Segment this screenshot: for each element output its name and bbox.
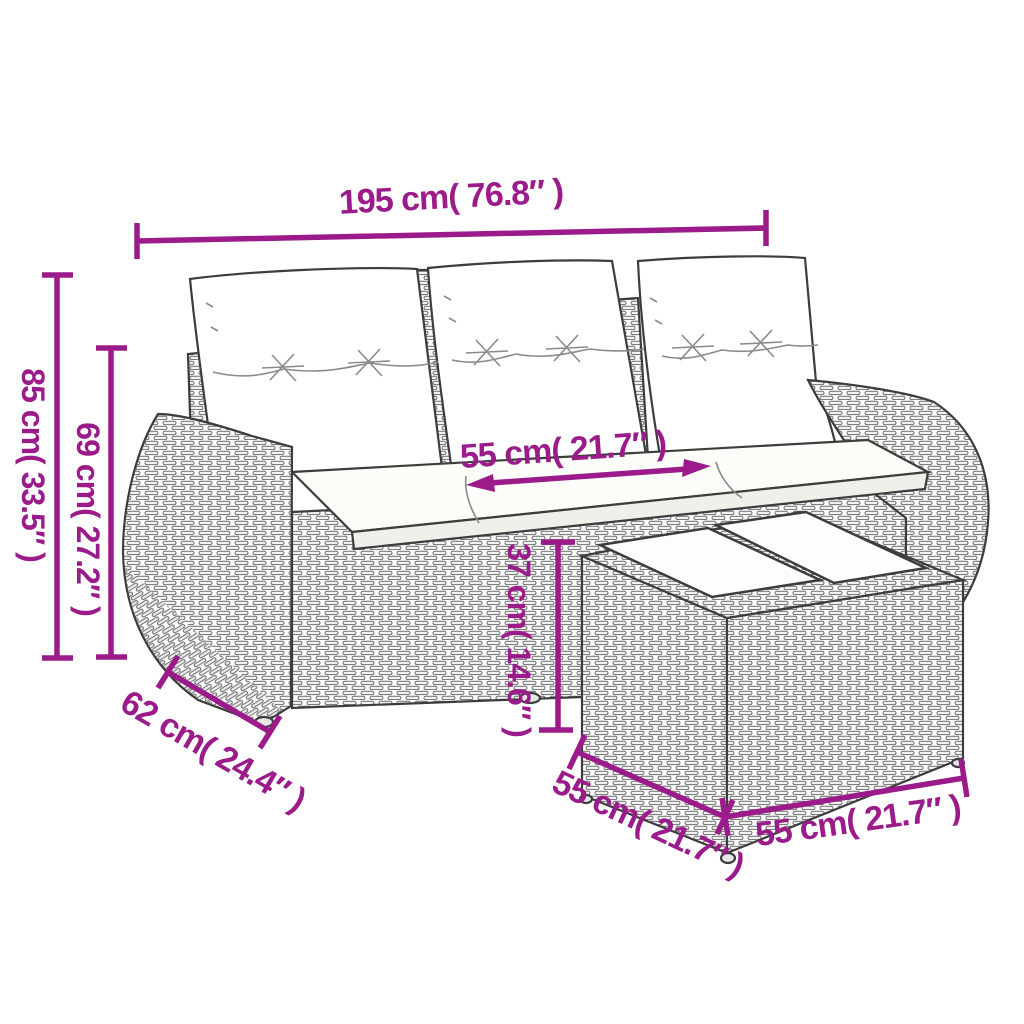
product-dimension-diagram: 195 cm( 76.8″ ) 85 cm( 33.5″ ) 69 cm( 27… xyxy=(0,0,1024,1024)
label-stool-height: 37 cm( 14.6″ ) xyxy=(501,543,537,737)
label-back-height: 69 cm( 27.2″ ) xyxy=(70,422,106,616)
diagram-canvas: 195 cm( 76.8″ ) 85 cm( 33.5″ ) 69 cm( 27… xyxy=(0,0,1024,1024)
label-overall-height: 85 cm( 33.5″ ) xyxy=(15,368,51,562)
